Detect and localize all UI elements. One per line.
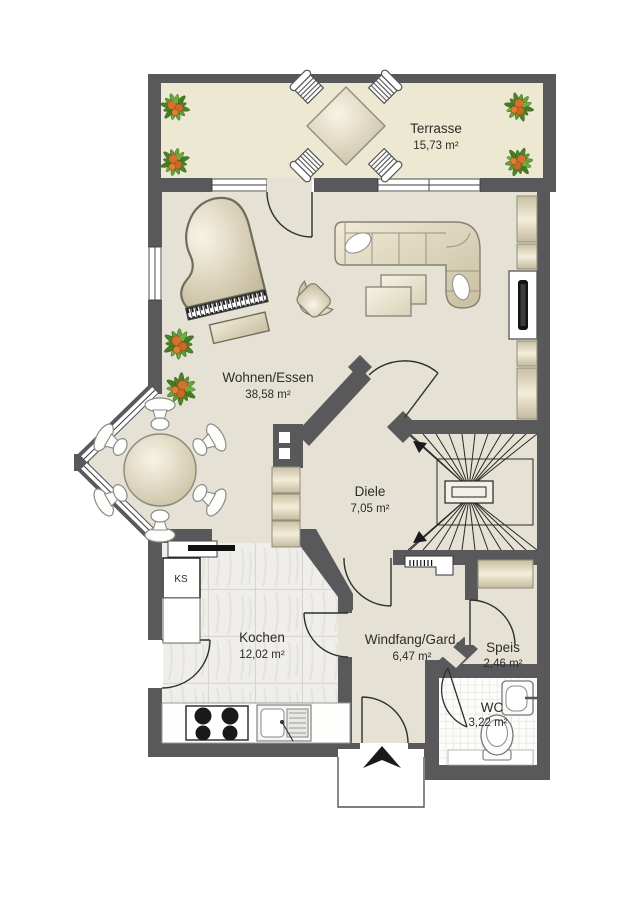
room-label-diele: Diele xyxy=(355,484,386,499)
room-label-wohnen: Wohnen/Essen xyxy=(222,370,313,385)
entrance xyxy=(338,746,424,807)
fridge-label: KS xyxy=(174,574,188,585)
wall-niche xyxy=(279,448,290,459)
wall-terrace-right xyxy=(543,74,556,186)
door-gap-kitchen-ext xyxy=(147,640,163,688)
cabinet xyxy=(517,244,537,269)
dining-table xyxy=(124,434,196,506)
room-label-kochen: Kochen xyxy=(239,630,285,645)
coffee-table xyxy=(366,287,411,316)
speis-shelf xyxy=(478,560,533,588)
shelf-box xyxy=(272,467,300,493)
door-gap-speis xyxy=(465,600,478,645)
wall-terrace-top xyxy=(148,74,556,83)
wall-terrace-left xyxy=(148,74,161,186)
shelf-box xyxy=(272,494,300,520)
room-area-windfang: 6,47 m² xyxy=(393,651,432,663)
wall-stairs-top xyxy=(400,420,537,434)
door-gap-kitchen xyxy=(338,613,352,657)
wall-bottom-wc xyxy=(425,765,550,780)
stove xyxy=(186,706,248,741)
fridge xyxy=(163,558,200,643)
room-label-terrasse: Terrasse xyxy=(410,121,462,136)
window-terrace-door xyxy=(378,179,480,191)
wall-wc-left xyxy=(425,660,439,780)
wall-niche xyxy=(279,432,290,443)
cabinet xyxy=(517,196,537,242)
wall-left-upper xyxy=(148,186,162,247)
window-top-left xyxy=(212,179,267,191)
floor-plan-drawing: Terrasse 15,73 m² Wohnen/Essen 38,58 m² … xyxy=(0,0,635,900)
shelf-box xyxy=(272,521,300,547)
room-area-wc: 3,22 m² xyxy=(469,717,508,729)
cabinet xyxy=(517,341,537,366)
window-left xyxy=(149,247,161,300)
kitchen-sink xyxy=(257,705,311,741)
room-area-speis: 2,46 m² xyxy=(484,658,523,670)
room-area-diele: 7,05 m² xyxy=(351,503,390,515)
room-area-kochen: 12,02 m² xyxy=(239,649,285,661)
wall-bottom-kitchen xyxy=(148,743,360,757)
wall-speis-left xyxy=(465,558,478,602)
room-area-terrasse: 15,73 m² xyxy=(413,140,459,152)
cabinet xyxy=(517,368,537,419)
wall-right-outer xyxy=(537,178,550,780)
wall-top-2 xyxy=(314,178,378,192)
room-label-wc: WC xyxy=(481,700,504,715)
wc-sink xyxy=(502,681,538,715)
wall-left-kitchen-upper xyxy=(148,535,162,640)
floor-plan-page: Terrasse 15,73 m² Wohnen/Essen 38,58 m² … xyxy=(0,0,635,900)
room-area-wohnen: 38,58 m² xyxy=(245,389,291,401)
room-label-speis: Speis xyxy=(486,640,520,655)
room-label-windfang: Windfang/Gard. xyxy=(365,632,460,647)
